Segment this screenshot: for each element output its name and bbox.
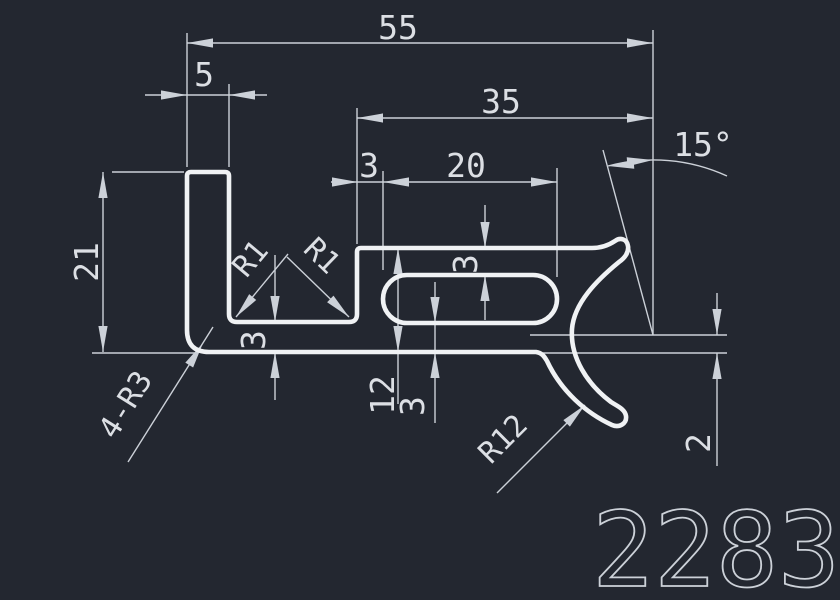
dim-tip-angle: 15° <box>673 125 733 164</box>
dim-right-width: 35 <box>481 82 521 121</box>
dim-step-wall: 3 <box>359 146 379 185</box>
dim-overall-width: 55 <box>378 8 418 47</box>
profile-slot-outline <box>383 275 557 323</box>
dim-leg-height: 21 <box>67 242 106 282</box>
dim-slot-bottom-wall: 3 <box>393 396 432 416</box>
label-hook-radius: R12 <box>472 408 535 471</box>
dim-slot-length: 20 <box>446 146 486 185</box>
profile-drawing: 55 5 35 3 20 15° 21 12 3 3 3 2 R1 R1 4-R… <box>0 0 840 600</box>
dim-arm-thickness: 3 <box>234 330 273 350</box>
arrowheads <box>98 38 721 426</box>
label-corner-fillets: 4-R3 <box>92 365 160 445</box>
part-number: 2283 <box>592 491 840 600</box>
dim-slot-top-wall: 3 <box>446 254 485 274</box>
dim-leg-width: 5 <box>194 55 214 94</box>
dim-tip-offset: 2 <box>679 433 718 453</box>
cad-drawing-canvas: 55 5 35 3 20 15° 21 12 3 3 3 2 R1 R1 4-R… <box>0 0 840 600</box>
label-fillet-left: R1 <box>226 234 276 284</box>
